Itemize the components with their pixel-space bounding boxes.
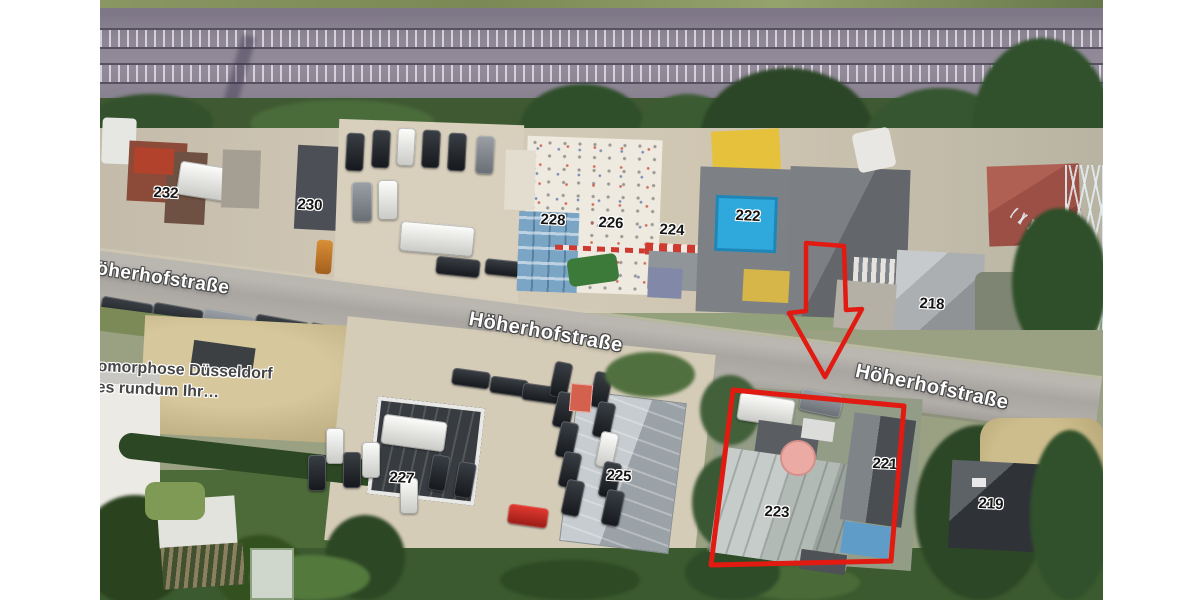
red-arrow-annotation: [789, 243, 862, 377]
annotation-overlay: [100, 0, 1103, 600]
screenshot-stage: Höherhofstraße Höherhofstraße Höherhofst…: [0, 0, 1200, 600]
map-canvas[interactable]: Höherhofstraße Höherhofstraße Höherhofst…: [100, 0, 1103, 600]
red-parcel-annotation: [711, 390, 904, 565]
